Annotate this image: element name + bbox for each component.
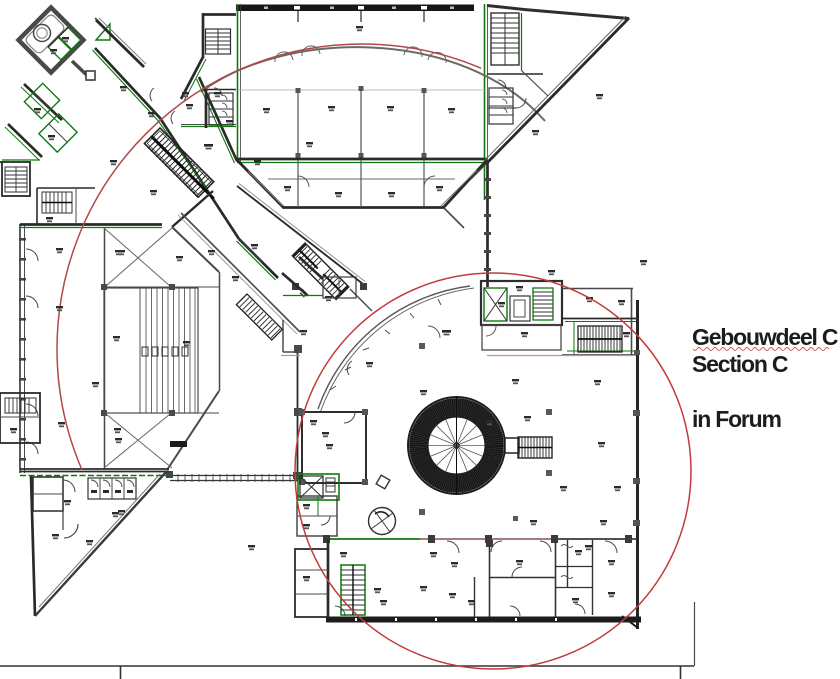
svg-text:Gebouwdeel C: Gebouwdeel C xyxy=(692,324,838,350)
svg-text:in Forum: in Forum xyxy=(692,406,782,432)
svg-text:Section C: Section C xyxy=(692,351,788,377)
